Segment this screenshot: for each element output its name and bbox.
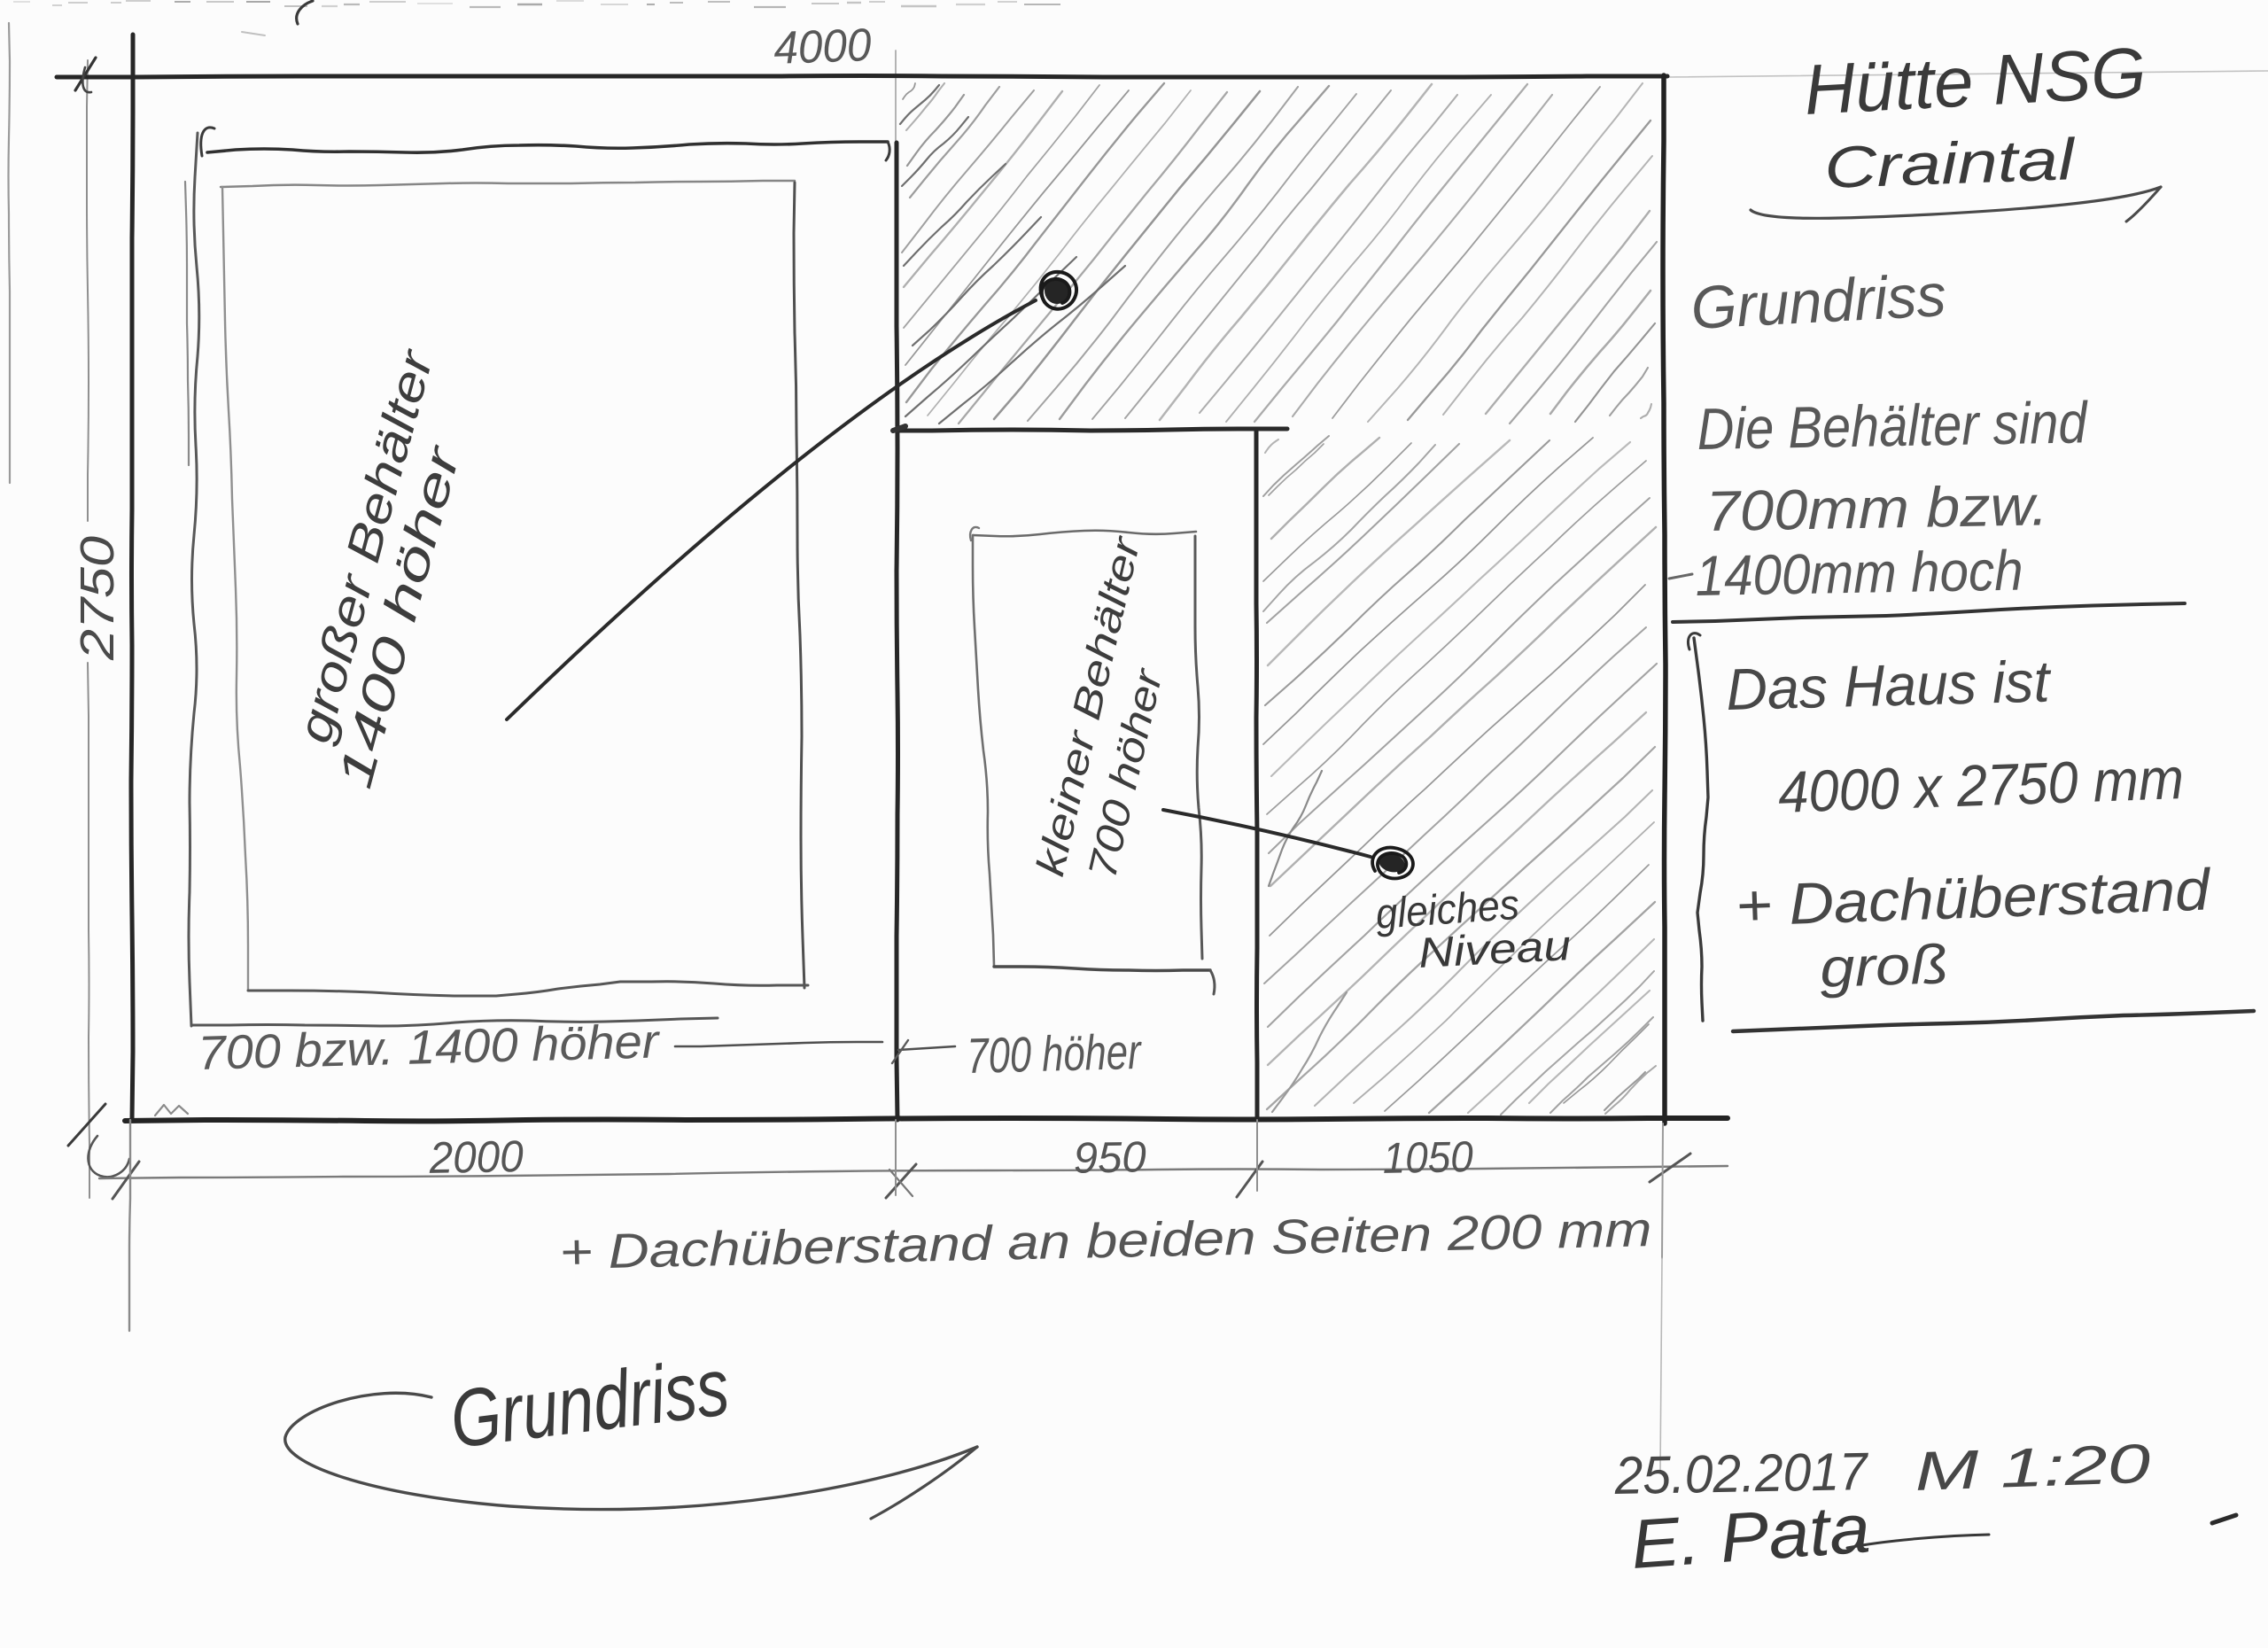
svg-text:1050: 1050 xyxy=(1382,1133,1473,1183)
svg-text:2750: 2750 xyxy=(71,536,124,661)
svg-text:700mm bzw.: 700mm bzw. xyxy=(1705,473,2048,543)
svg-text:950: 950 xyxy=(1073,1133,1146,1182)
svg-text:E. Pata: E. Pata xyxy=(1628,1489,1872,1583)
svg-text:1400mm hoch: 1400mm hoch xyxy=(1695,539,2023,608)
svg-text:4000: 4000 xyxy=(773,19,872,74)
svg-text:Craintal: Craintal xyxy=(1823,126,2078,200)
svg-text:groß: groß xyxy=(1819,934,1949,999)
svg-text:700 höher: 700 höher xyxy=(967,1023,1143,1084)
svg-text:Niveau: Niveau xyxy=(1417,922,1573,977)
svg-text:M 1:20: M 1:20 xyxy=(1914,1434,2151,1503)
svg-text:Die Behälter sind: Die Behälter sind xyxy=(1697,389,2089,462)
svg-text:2000: 2000 xyxy=(428,1131,524,1183)
svg-text:Grundriss: Grundriss xyxy=(1689,261,1948,342)
svg-text:Das Haus ist: Das Haus ist xyxy=(1725,648,2052,722)
